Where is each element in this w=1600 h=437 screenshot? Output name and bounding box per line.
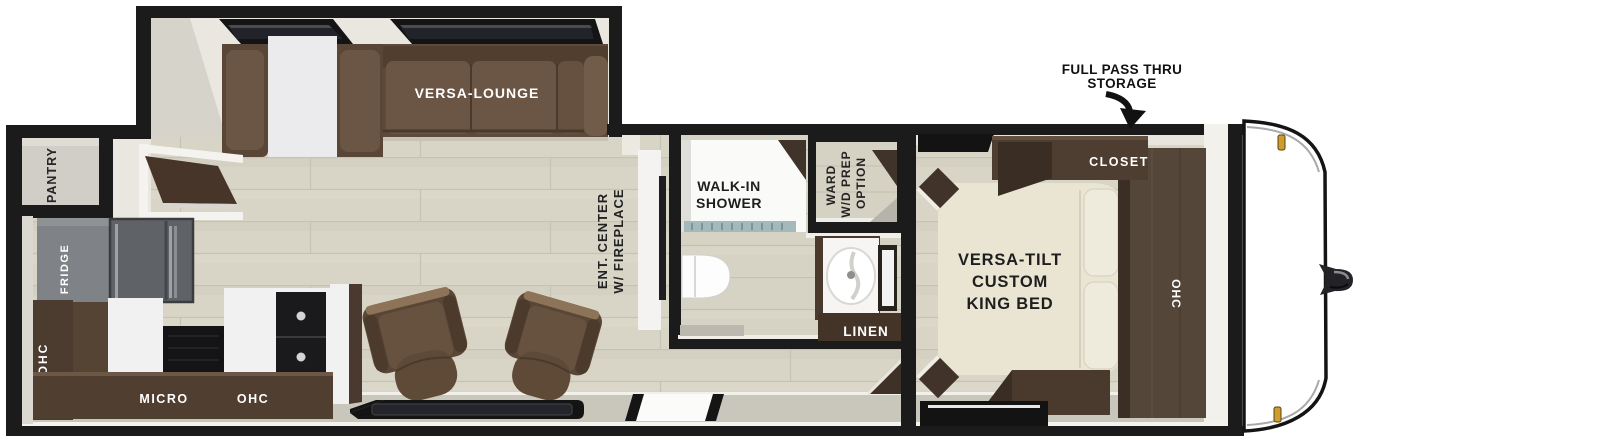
svg-text:FRIDGE: FRIDGE [59, 244, 71, 295]
svg-text:VERSA-LOUNGE: VERSA-LOUNGE [415, 85, 540, 101]
svg-text:OPTION: OPTION [854, 157, 868, 209]
svg-text:OHC: OHC [1169, 279, 1183, 309]
svg-text:PANTRY: PANTRY [45, 147, 59, 203]
svg-text:MICRO: MICRO [139, 392, 188, 406]
svg-text:OHC: OHC [237, 392, 269, 406]
svg-text:VERSA-TILT: VERSA-TILT [958, 251, 1062, 269]
svg-text:KING BED: KING BED [966, 295, 1053, 313]
svg-text:STORAGE: STORAGE [1087, 76, 1156, 91]
svg-text:ENT. CENTER: ENT. CENTER [595, 193, 610, 289]
svg-text:FULL PASS THRU: FULL PASS THRU [1062, 62, 1183, 77]
svg-text:SHOWER: SHOWER [696, 195, 762, 211]
svg-text:W/D PREP: W/D PREP [839, 150, 853, 217]
svg-text:OHC: OHC [36, 343, 50, 376]
svg-text:W/ FIREPLACE: W/ FIREPLACE [611, 188, 626, 293]
svg-text:LINEN: LINEN [843, 324, 889, 339]
svg-text:CLOSET: CLOSET [1089, 155, 1149, 169]
svg-text:WALK-IN: WALK-IN [697, 178, 760, 194]
svg-text:WARD: WARD [824, 165, 838, 206]
svg-text:CUSTOM: CUSTOM [972, 273, 1048, 291]
